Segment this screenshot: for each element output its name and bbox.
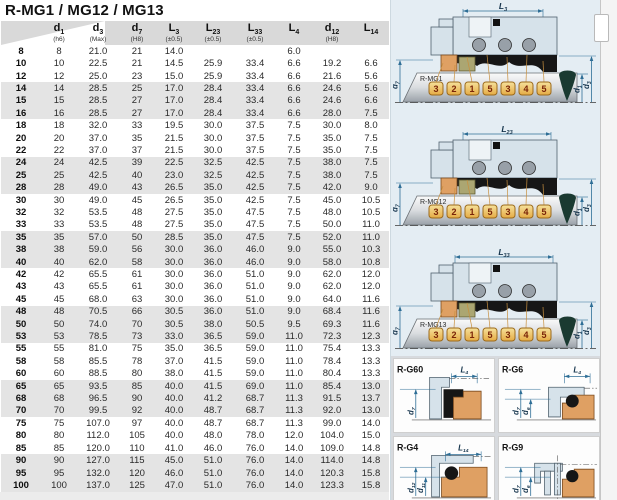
- seal-diagram-r-mg13: L33R-MG133215345d1d3d7: [393, 247, 598, 365]
- row-size-label: 80: [1, 430, 41, 441]
- table-row: 8585120.011041.046.076.014.0109.014.8: [1, 442, 389, 454]
- table-cell: 27.5: [155, 219, 193, 230]
- table-cell: 14.8: [353, 443, 389, 454]
- callout-number: 1: [469, 330, 474, 340]
- table-cell: 69.0: [233, 381, 277, 392]
- row-size-label: 33: [1, 219, 41, 230]
- table-row: 656593.58540.041.569.011.085.413.0: [1, 380, 389, 392]
- table-row: 151528.52717.028.433.46.624.66.6: [1, 95, 389, 107]
- set-screw: [493, 265, 500, 272]
- table-cell: 127.0: [77, 455, 119, 466]
- table-footer-strip: [0, 492, 389, 500]
- table-cell: 25.9: [193, 58, 233, 69]
- table-cell: 17.0: [155, 95, 193, 106]
- table-cell: 23.0: [155, 170, 193, 181]
- table-row: 686896.59040.041.268.711.391.513.7: [1, 392, 389, 404]
- table-cell: 109.0: [311, 443, 353, 454]
- table-cell: 16: [41, 108, 77, 119]
- table-cell: 49.0: [77, 195, 119, 206]
- seat-card-r-g60: R-G60L4d7: [393, 358, 495, 433]
- seat-diagram-label: R-G60: [397, 364, 423, 374]
- o-ring: [445, 467, 458, 480]
- table-cell: 14.0: [277, 468, 311, 479]
- table-cell: 55.0: [311, 244, 353, 255]
- table-cell: 40.0: [155, 418, 193, 429]
- table-cell: 50: [119, 232, 155, 243]
- table-cell: 7.5: [353, 133, 389, 144]
- table-cell: 93.5: [77, 381, 119, 392]
- table-cell: 7.5: [277, 133, 311, 144]
- table-cell: 47.5: [233, 232, 277, 243]
- table-cell: 68: [41, 393, 77, 404]
- table-row: 252542.54023.032.542.57.538.07.5: [1, 169, 389, 181]
- table-cell: 58.0: [311, 257, 353, 268]
- table-row: 535378.57333.036.559.011.072.312.3: [1, 330, 389, 342]
- table-cell: 10.3: [353, 244, 389, 255]
- row-size-label: 24: [1, 157, 41, 168]
- table-cell: 15.8: [353, 468, 389, 479]
- table-cell: 80.4: [311, 368, 353, 379]
- callout-number: 5: [541, 84, 546, 94]
- table-cell: 33.4: [233, 71, 277, 82]
- seat-diagram-r-g9: R-G9d7d6: [499, 437, 599, 500]
- table-cell: 14: [41, 83, 77, 94]
- table-cell: 50.0: [311, 219, 353, 230]
- table-row: 323253.54827.535.047.57.548.010.5: [1, 206, 389, 218]
- table-cell: 22.5: [155, 157, 193, 168]
- table-cell: 47.0: [155, 480, 193, 491]
- table-cell: 8.0: [353, 120, 389, 131]
- table-cell: 57.0: [77, 232, 119, 243]
- callout-number: 5: [487, 84, 492, 94]
- table-cell: 104.0: [311, 430, 353, 441]
- table-cell: 11.0: [277, 343, 311, 354]
- dim-label-top: L14: [458, 444, 469, 455]
- table-cell: 51.0: [233, 306, 277, 317]
- table-cell: 11.6: [353, 306, 389, 317]
- table-cell: 120.3: [311, 468, 353, 479]
- column-header-d1: d1(h6): [41, 23, 77, 44]
- seal-diagram-r-mg12: L23R-MG123215345d1d3d7: [393, 124, 598, 242]
- table-cell: 11.3: [277, 405, 311, 416]
- table-cell: 120: [119, 468, 155, 479]
- table-cell: 30.0: [155, 257, 193, 268]
- table-cell: 14.0: [353, 418, 389, 429]
- row-size-label: 14: [1, 83, 41, 94]
- table-cell: 26.5: [155, 182, 193, 193]
- table-cell: 123.3: [311, 480, 353, 491]
- row-size-label: 60: [1, 368, 41, 379]
- table-cell: 7.5: [277, 120, 311, 131]
- table-row: 9595132.012046.051.076.014.0120.315.8: [1, 467, 389, 479]
- callout-number: 3: [433, 84, 438, 94]
- table-cell: 11.3: [277, 418, 311, 429]
- page-edge-tab: [594, 14, 609, 42]
- table-cell: 38.0: [311, 157, 353, 168]
- table-cell: 37.0: [77, 133, 119, 144]
- table-cell: 75.4: [311, 343, 353, 354]
- callout-number: 2: [451, 330, 456, 340]
- table-cell: 40.0: [155, 393, 193, 404]
- table-cell: 132.0: [77, 468, 119, 479]
- table-cell: 70: [119, 319, 155, 330]
- table-cell: 120.0: [77, 443, 119, 454]
- table-cell: 40.0: [155, 405, 193, 416]
- page-edge: [600, 0, 617, 500]
- callout-number: 1: [469, 207, 474, 217]
- table-cell: 52.0: [311, 232, 353, 243]
- seal-face: [459, 303, 475, 317]
- table-cell: 13.0: [353, 381, 389, 392]
- table-row: 7575107.09740.048.768.711.399.014.0: [1, 417, 389, 429]
- table-cell: 9.0: [277, 257, 311, 268]
- seat-diagram-r-g4: R-G4L14d12d11: [394, 437, 494, 500]
- row-size-label: 45: [1, 294, 41, 305]
- table-cell: 27.5: [155, 207, 193, 218]
- table-cell: 59.0: [233, 368, 277, 379]
- table-cell: 50.5: [233, 319, 277, 330]
- table-row: 585885.57837.041.559.011.078.413.3: [1, 355, 389, 367]
- table-cell: 99.0: [311, 418, 353, 429]
- table-cell: 33.4: [233, 83, 277, 94]
- column-header-L3: L3(±0.5): [155, 23, 193, 44]
- table-cell: 37.5: [233, 120, 277, 131]
- table-cell: 33.4: [233, 58, 277, 69]
- table-cell: 14.8: [353, 455, 389, 466]
- table-cell: 11.0: [277, 381, 311, 392]
- table-cell: 73: [119, 331, 155, 342]
- row-size-label: 85: [1, 443, 41, 454]
- table-cell: 23: [119, 71, 155, 82]
- table-cell: 36.0: [193, 269, 233, 280]
- table-cell: 35: [41, 232, 77, 243]
- table-cell: 7.5: [277, 182, 311, 193]
- table-cell: 99.5: [77, 405, 119, 416]
- table-cell: 32.5: [193, 157, 233, 168]
- row-size-label: 43: [1, 281, 41, 292]
- table-cell: 7.5: [353, 145, 389, 156]
- table-row: 121225.02315.025.933.46.621.65.6: [1, 70, 389, 82]
- table-cell: 32: [41, 207, 77, 218]
- callout-number: 5: [541, 330, 546, 340]
- seat-diagram-r-g60: R-G60L4d7: [394, 359, 494, 432]
- table-cell: 78: [119, 356, 155, 367]
- table-cell: 66: [119, 306, 155, 317]
- table-cell: 41.0: [155, 443, 193, 454]
- table-cell: 65.5: [77, 269, 119, 280]
- seat-diagram-r-g6: R-G6L4d7d6: [499, 359, 599, 432]
- table-cell: 46.0: [233, 257, 277, 268]
- row-size-label: 30: [1, 195, 41, 206]
- table-cell: 11.6: [353, 294, 389, 305]
- table-row: 161628.52717.028.433.46.628.07.5: [1, 107, 389, 119]
- table-cell: 90: [119, 393, 155, 404]
- table-row: 8080112.010540.048.078.012.0104.015.0: [1, 430, 389, 442]
- callout-number: 4: [523, 207, 528, 217]
- table-cell: 9.0: [353, 182, 389, 193]
- table-cell: 28.5: [155, 232, 193, 243]
- table-row: 181832.03319.530.037.57.530.08.0: [1, 119, 389, 131]
- row-size-label: 40: [1, 257, 41, 268]
- callout-number: 2: [451, 207, 456, 217]
- row-size-label: 42: [1, 269, 41, 280]
- table-cell: 59.0: [233, 331, 277, 342]
- table-row: 555581.07535.036.559.011.075.413.3: [1, 343, 389, 355]
- table-cell: 76.0: [233, 455, 277, 466]
- table-cell: 137.0: [77, 480, 119, 491]
- table-cell: 21: [119, 46, 155, 57]
- table-cell: 25.9: [193, 71, 233, 82]
- table-cell: 20: [41, 133, 77, 144]
- table-cell: 11.3: [277, 393, 311, 404]
- table-cell: 28.5: [77, 108, 119, 119]
- table-cell: 85.5: [77, 356, 119, 367]
- table-cell: 22: [41, 145, 77, 156]
- table-cell: 59.0: [233, 343, 277, 354]
- table-cell: 53.5: [77, 207, 119, 218]
- seat-diagram-label: R-G6: [502, 364, 523, 374]
- table-cell: 65: [41, 381, 77, 392]
- table-cell: 28.4: [193, 83, 233, 94]
- row-size-label: 90: [1, 455, 41, 466]
- table-cell: 37.0: [155, 356, 193, 367]
- table-cell: 6.6: [277, 108, 311, 119]
- table-cell: 15: [41, 95, 77, 106]
- row-size-label: 22: [1, 145, 41, 156]
- table-cell: 41.5: [193, 381, 233, 392]
- table-cell: 48.0: [311, 207, 353, 218]
- table-cell: 14.0: [277, 455, 311, 466]
- table-cell: 61: [119, 281, 155, 292]
- table-cell: 21: [119, 58, 155, 69]
- table-cell: 114.0: [311, 455, 353, 466]
- table-cell: 47.5: [233, 219, 277, 230]
- callout-number: 3: [433, 330, 438, 340]
- dim-label-top: L4: [573, 365, 581, 376]
- callout-number: 5: [487, 330, 492, 340]
- table-cell: 14.5: [155, 58, 193, 69]
- row-size-label: 8: [1, 46, 41, 57]
- table-cell: 25.0: [77, 71, 119, 82]
- table-cell: 33.0: [155, 331, 193, 342]
- table-row: 424265.56130.036.051.09.062.012.0: [1, 268, 389, 280]
- table-body: 8821.02114.06.0101022.52114.525.933.46.6…: [1, 45, 389, 494]
- table-cell: 28.4: [193, 95, 233, 106]
- table-cell: 21.6: [311, 71, 353, 82]
- table-cell: 35.0: [193, 232, 233, 243]
- table-cell: 8: [41, 46, 77, 57]
- main-diagrams: L3R-MG13215345d1d3d7L23R-MG123215345d1d3…: [393, 1, 600, 370]
- table-cell: 78.5: [77, 331, 119, 342]
- table-cell: 40.0: [155, 430, 193, 441]
- table-cell: 10.8: [353, 257, 389, 268]
- table-row: 202037.03521.530.037.57.535.07.5: [1, 132, 389, 144]
- table-cell: 9.5: [277, 319, 311, 330]
- table-cell: 40: [119, 170, 155, 181]
- table-cell: 19.2: [311, 58, 353, 69]
- dimension-table: d1(h6)d3(Max)d7(H8)L3(±0.5)L23(±0.5)L33(…: [1, 21, 389, 494]
- seal-face: [459, 180, 475, 194]
- callout-number: 3: [505, 330, 510, 340]
- spring-coil: [523, 285, 536, 298]
- diagram-panel: L3R-MG13215345d1d3d7L23R-MG123215345d1d3…: [390, 0, 601, 500]
- spring-coil: [499, 162, 512, 175]
- table-cell: 15.0: [155, 71, 193, 82]
- table-cell: 42.5: [77, 157, 119, 168]
- seat-card-r-g9: R-G9d7d6: [498, 436, 600, 500]
- table-row: 100100137.012547.051.076.014.0123.315.8: [1, 479, 389, 491]
- table-cell: 35.0: [311, 145, 353, 156]
- table-cell: 76.0: [233, 480, 277, 491]
- callout-number: 5: [487, 207, 492, 217]
- table-cell: 55: [41, 343, 77, 354]
- table-cell: 37.5: [233, 133, 277, 144]
- set-screw: [493, 19, 500, 26]
- table-cell: 69.3: [311, 319, 353, 330]
- table-cell: 43: [41, 281, 77, 292]
- table-row: 222237.03721.530.037.57.535.07.5: [1, 144, 389, 156]
- table-cell: 28.5: [77, 83, 119, 94]
- table-cell: 41.2: [193, 393, 233, 404]
- table-cell: 38.0: [193, 319, 233, 330]
- table-row: 707099.59240.048.768.711.392.013.0: [1, 405, 389, 417]
- table-cell: 13.3: [353, 368, 389, 379]
- table-cell: 42.5: [233, 157, 277, 168]
- table-cell: 30.0: [193, 145, 233, 156]
- table-cell: 46.0: [155, 468, 193, 479]
- seat-card-r-g6: R-G6L4d7d6: [498, 358, 600, 433]
- table-cell: 43: [119, 182, 155, 193]
- table-cell: 58: [41, 356, 77, 367]
- table-cell: 24.6: [311, 95, 353, 106]
- table-cell: 112.0: [77, 430, 119, 441]
- table-cell: 7.5: [277, 232, 311, 243]
- table-cell: 36.5: [193, 343, 233, 354]
- row-size-label: 75: [1, 418, 41, 429]
- table-cell: 10.5: [353, 207, 389, 218]
- table-cell: 7.5: [277, 219, 311, 230]
- table-cell: 72.3: [311, 331, 353, 342]
- table-cell: 17.0: [155, 83, 193, 94]
- row-size-label: 16: [1, 108, 41, 119]
- table-row: 454568.06330.036.051.09.064.011.6: [1, 293, 389, 305]
- table-row: 141428.52517.028.433.46.624.65.6: [1, 82, 389, 94]
- table-cell: 85.4: [311, 381, 353, 392]
- table-cell: 37: [119, 145, 155, 156]
- table-cell: 40: [41, 257, 77, 268]
- table-cell: 27: [119, 95, 155, 106]
- table-cell: 125: [119, 480, 155, 491]
- table-cell: 68.0: [77, 294, 119, 305]
- callout-number: 3: [505, 207, 510, 217]
- table-cell: 30: [41, 195, 77, 206]
- table-row: 9090127.011545.051.076.014.0114.014.8: [1, 454, 389, 466]
- table-cell: 36.0: [193, 244, 233, 255]
- table-cell: 35.0: [311, 133, 353, 144]
- table-cell: 51.0: [233, 269, 277, 280]
- table-cell: 30.0: [155, 294, 193, 305]
- table-cell: 62.0: [77, 257, 119, 268]
- table-cell: 37.0: [77, 145, 119, 156]
- table-cell: 11.0: [277, 331, 311, 342]
- spring-coil: [499, 285, 512, 298]
- spring-coil: [473, 39, 486, 52]
- table-cell: 40.0: [155, 381, 193, 392]
- table-cell: 14.0: [155, 46, 193, 57]
- table-cell: 38.0: [311, 170, 353, 181]
- table-cell: 91.5: [311, 393, 353, 404]
- table-row: 606088.58038.041.559.011.080.413.3: [1, 368, 389, 380]
- table-cell: 9.0: [277, 294, 311, 305]
- table-cell: 105: [119, 430, 155, 441]
- table-cell: 6.6: [277, 95, 311, 106]
- table-cell: 68.4: [311, 306, 353, 317]
- table-cell: 11.0: [277, 368, 311, 379]
- table-cell: 11.0: [353, 232, 389, 243]
- table-cell: 12.0: [353, 269, 389, 280]
- spring-coil: [523, 39, 536, 52]
- table-cell: 5.6: [353, 71, 389, 82]
- callout-number: 4: [523, 330, 528, 340]
- row-size-label: 100: [1, 480, 41, 491]
- table-row: 282849.04326.535.042.57.542.09.0: [1, 181, 389, 193]
- table-cell: 51.0: [193, 468, 233, 479]
- row-size-label: 18: [1, 120, 41, 131]
- table-cell: 90: [41, 455, 77, 466]
- table-cell: 33.4: [233, 95, 277, 106]
- o-ring: [566, 395, 579, 408]
- table-cell: 36.5: [193, 331, 233, 342]
- table-cell: 14.0: [277, 443, 311, 454]
- table-cell: 75: [119, 343, 155, 354]
- table-cell: 11.0: [353, 219, 389, 230]
- table-cell: 30.0: [155, 244, 193, 255]
- table-row: 505074.07030.538.050.59.569.311.6: [1, 318, 389, 330]
- table-cell: 45.0: [155, 455, 193, 466]
- row-size-label: 65: [1, 381, 41, 392]
- table-cell: 65.5: [77, 281, 119, 292]
- table-cell: 92: [119, 405, 155, 416]
- table-cell: 46.0: [233, 244, 277, 255]
- table-cell: 42.0: [311, 182, 353, 193]
- callout-number: 5: [541, 207, 546, 217]
- table-cell: 35.0: [193, 195, 233, 206]
- table-cell: 110: [119, 443, 155, 454]
- table-cell: 28: [41, 182, 77, 193]
- table-cell: 21.5: [155, 145, 193, 156]
- row-size-label: 70: [1, 405, 41, 416]
- table-cell: 33: [119, 120, 155, 131]
- table-cell: 95: [41, 468, 77, 479]
- table-cell: 27: [119, 108, 155, 119]
- table-cell: 45.0: [311, 195, 353, 206]
- table-row: 8821.02114.06.0: [1, 45, 389, 57]
- callout-number: 2: [451, 84, 456, 94]
- table-cell: 5.6: [353, 83, 389, 94]
- table-cell: 46.0: [193, 443, 233, 454]
- table-cell: 48.7: [193, 418, 233, 429]
- callout-number: 4: [523, 84, 528, 94]
- table-cell: 9.0: [277, 244, 311, 255]
- table-cell: 64.0: [311, 294, 353, 305]
- table-cell: 15.0: [353, 430, 389, 441]
- table-cell: 7.5: [353, 170, 389, 181]
- table-row: 484870.56630.536.051.09.068.411.6: [1, 306, 389, 318]
- table-cell: 80: [119, 368, 155, 379]
- table-cell: 30.5: [155, 319, 193, 330]
- o-ring: [566, 470, 578, 482]
- table-cell: 12.3: [353, 331, 389, 342]
